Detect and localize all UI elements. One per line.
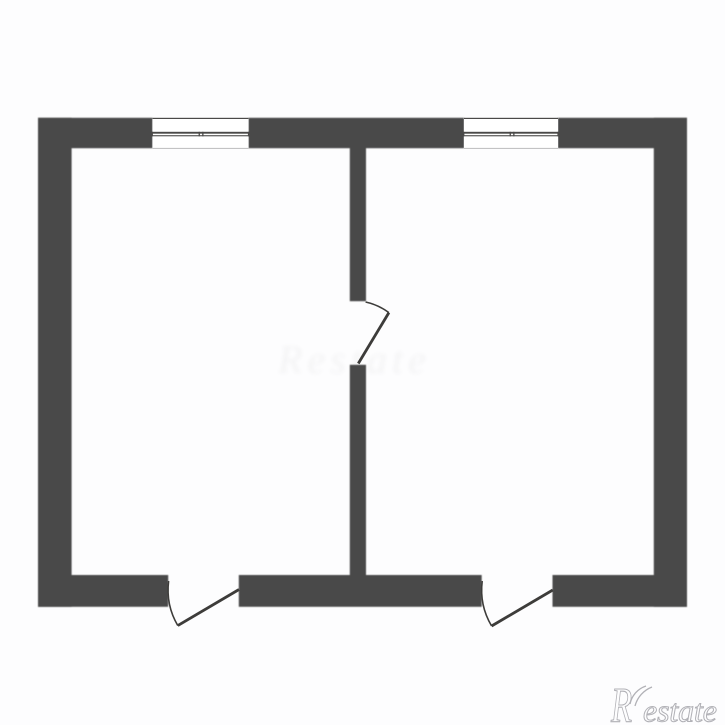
svg-text:estate: estate [643,693,717,725]
svg-text:R: R [610,678,632,725]
